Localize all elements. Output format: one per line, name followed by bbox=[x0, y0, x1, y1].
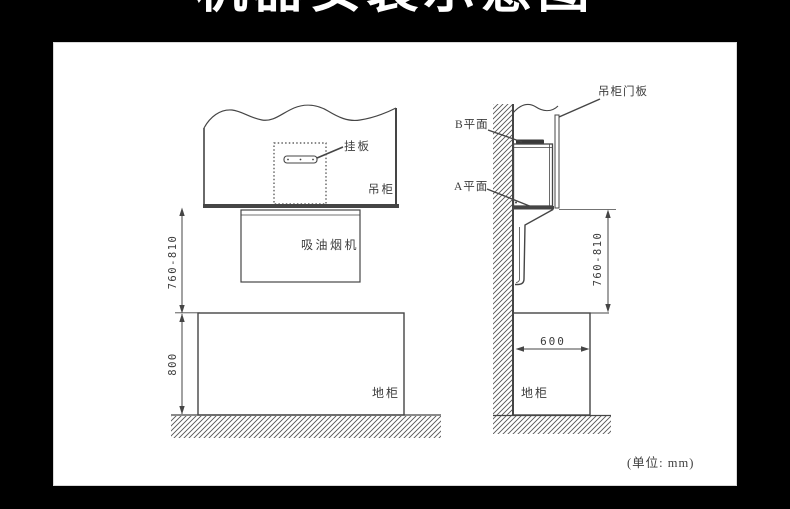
plane-a-label: A平面 bbox=[454, 182, 488, 194]
dimension-label-760-810-left: 760-810 bbox=[168, 227, 182, 297]
wall-hatch bbox=[493, 104, 513, 416]
cabinet-door-panel-label: 吊柜门板 bbox=[598, 87, 648, 99]
plane-b-label: B平面 bbox=[455, 120, 489, 132]
page-title: 机器安装示意图 bbox=[0, 0, 790, 18]
unit-note: (单位: mm) bbox=[627, 452, 694, 471]
cabinet-door-panel bbox=[555, 115, 559, 208]
dimension-label-760-810-right: 760-810 bbox=[593, 224, 607, 294]
range-hood-side-view bbox=[513, 144, 554, 210]
installation-diagram-page: 机器安装示意图 bbox=[0, 0, 790, 509]
cabinet-wavy-top-right bbox=[513, 105, 558, 113]
dimension-label-600: 600 bbox=[528, 336, 578, 347]
floor-cabinet-label-right: 地柜 bbox=[521, 387, 549, 399]
hanging-plate-label: 挂板 bbox=[344, 142, 371, 154]
door-panel-leader-line bbox=[559, 99, 600, 117]
ground-hatch-right bbox=[493, 416, 611, 434]
diagram-panel: 挂板 吊柜 吸油烟机 760-810 800 地柜 吊柜门板 B平面 A平面 7… bbox=[53, 42, 737, 486]
mounting-zone-dotted-outline bbox=[274, 143, 326, 204]
page-title-band: 机器安装示意图 bbox=[0, 0, 790, 20]
hood-lower-profile bbox=[515, 210, 553, 285]
hanging-plate bbox=[284, 156, 317, 163]
dimension-760-810-right bbox=[559, 210, 616, 314]
wall-cabinet-label: 吊柜 bbox=[368, 185, 395, 197]
left-elevation-drawing bbox=[171, 105, 441, 438]
range-hood-label: 吸油烟机 bbox=[301, 239, 359, 251]
wall-cabinet-wavy-top bbox=[204, 105, 396, 128]
dimension-label-800: 800 bbox=[168, 329, 182, 399]
plane-a-marker-dot bbox=[515, 202, 517, 204]
ground-hatch-left bbox=[171, 416, 441, 438]
hanging-plate-leader-line bbox=[317, 147, 343, 158]
floor-cabinet-label-left: 地柜 bbox=[372, 387, 400, 399]
diagram-linework bbox=[54, 43, 738, 487]
